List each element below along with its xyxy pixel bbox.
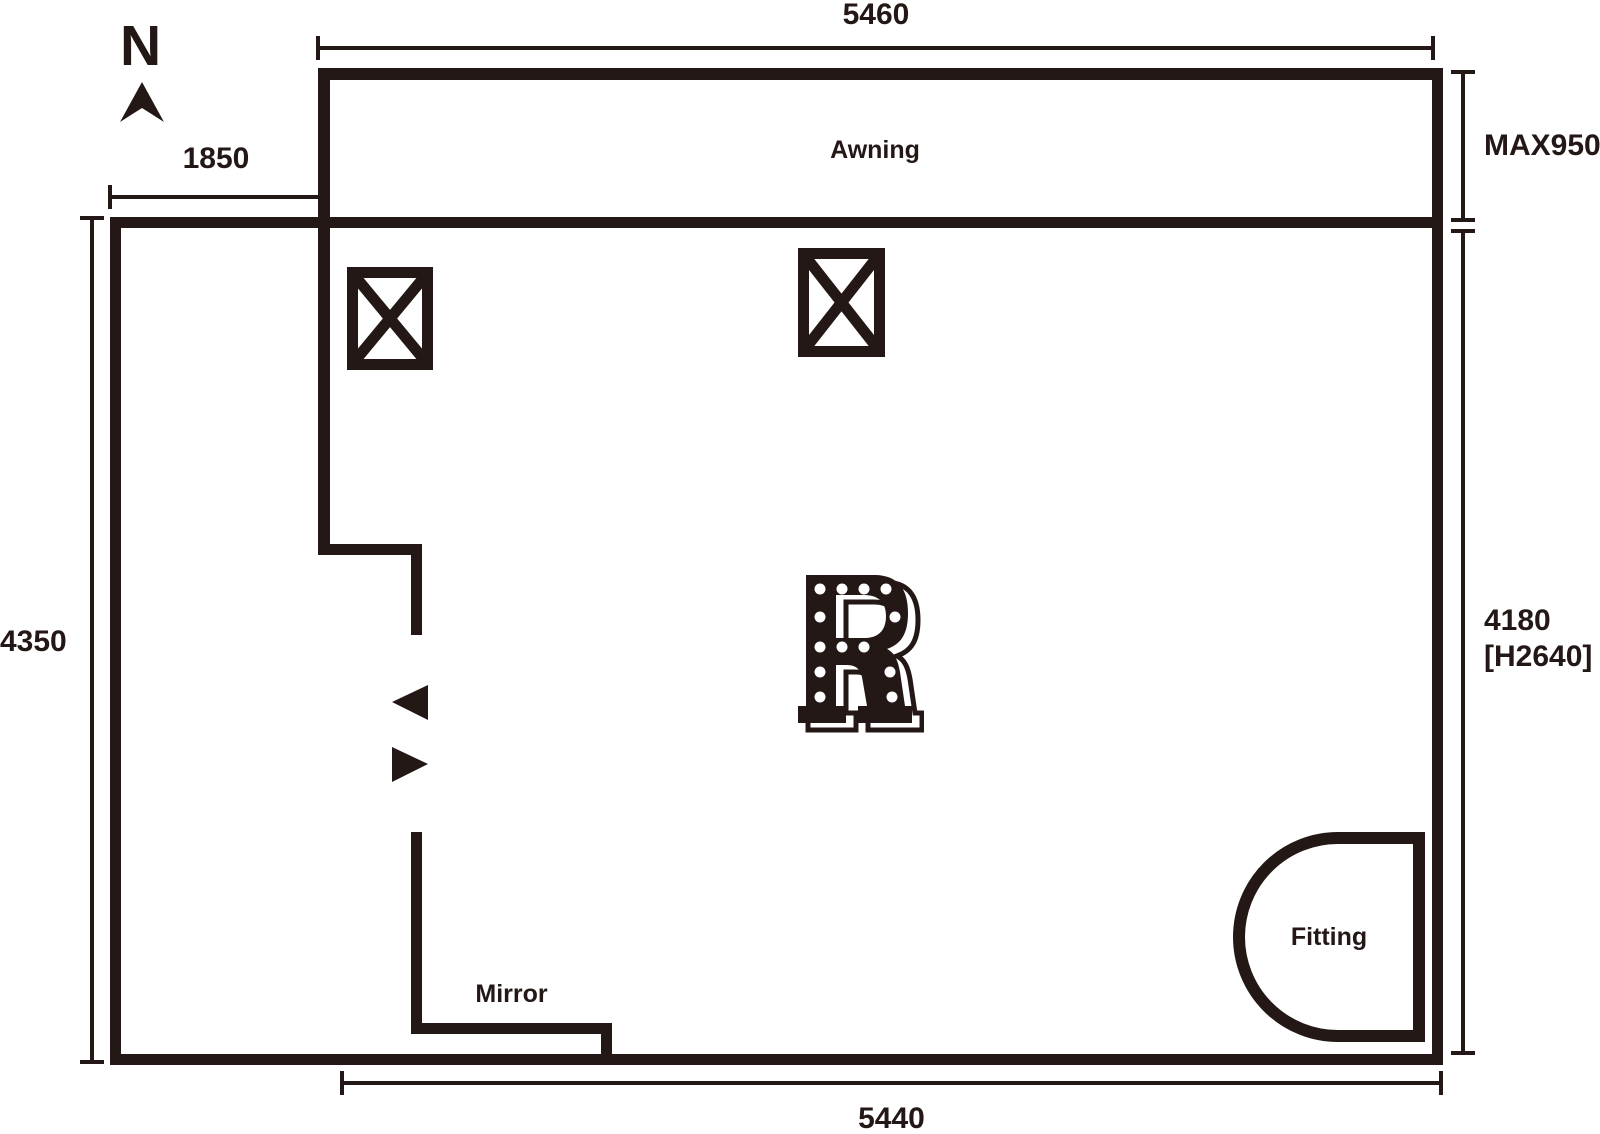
dimension-left-depth: 4350: [0, 627, 67, 657]
compass-north-label: N: [120, 18, 161, 75]
dimension-right-depth: 4180: [1484, 606, 1551, 636]
partition-wall-door-top: [411, 544, 422, 635]
dimension-tick: [1451, 1051, 1475, 1055]
north-arrow-icon: [120, 82, 164, 122]
dimension-tick: [80, 1060, 104, 1064]
dimension-tick: [340, 1071, 344, 1095]
marquee-r-logo-icon: [798, 575, 924, 735]
dimension-tick: [1451, 70, 1475, 74]
column-x-box-icon: [347, 267, 433, 370]
awning-top-wall: [318, 68, 1443, 80]
fitting-room: Fitting: [1233, 832, 1425, 1042]
door-arrow-right-icon: [392, 747, 428, 782]
dimension-line-bottom: [342, 1081, 1441, 1085]
dimension-line-left: [90, 218, 94, 1064]
mirror-top-edge: [411, 1023, 612, 1034]
bottom-wall: [110, 1054, 1443, 1065]
dimension-entry-offset: 1850: [110, 144, 322, 174]
door-arrow-left-icon: [392, 685, 428, 720]
fitting-label: Fitting: [1291, 925, 1367, 950]
dimension-line-entry: [110, 195, 322, 199]
dimension-tick: [1439, 1071, 1443, 1095]
dimension-tick: [108, 185, 112, 209]
dimension-line-right: [1461, 231, 1465, 1055]
dimension-tick: [316, 36, 320, 60]
awning-label: Awning: [318, 138, 1432, 163]
column-x-box-icon: [798, 248, 885, 357]
dimension-right-height: [H2640]: [1484, 642, 1592, 672]
partition-wall-jog: [318, 544, 422, 555]
dimension-line-top: [318, 46, 1434, 50]
dimension-room-width: 5440: [342, 1104, 1441, 1134]
dimension-awning-depth: MAX950: [1484, 131, 1600, 161]
dimension-line-awning-depth: [1461, 72, 1465, 222]
dimension-tick: [1451, 218, 1475, 222]
dimension-awning-width: 5460: [318, 0, 1434, 30]
dimension-tick: [1451, 229, 1475, 233]
top-wall: [110, 217, 1443, 228]
dimension-tick: [80, 216, 104, 220]
dimension-tick: [1431, 36, 1435, 60]
mirror-label: Mirror: [411, 982, 612, 1007]
mirror-right-edge: [601, 1023, 612, 1054]
right-wall: [1432, 68, 1443, 1065]
floor-plan: N 5460 1850 MAX950 4180 [H2640] 4350 544…: [0, 0, 1600, 1134]
left-wall: [110, 217, 121, 1065]
partition-wall-upper: [318, 217, 330, 555]
